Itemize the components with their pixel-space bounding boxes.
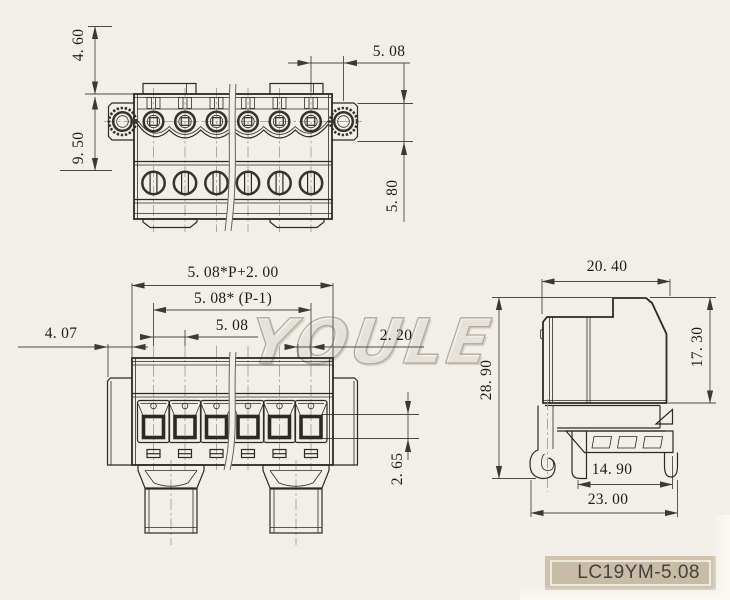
dim-side-depth: 20. 40 <box>587 258 628 276</box>
dim-bottom-pole-span: 5. 08* (P-1) <box>194 290 272 308</box>
side-view <box>492 279 716 517</box>
dim-side-total-height: 28. 90 <box>478 360 496 401</box>
dim-side-total-depth: 23. 00 <box>588 491 629 509</box>
side-dimensions <box>492 279 716 517</box>
dim-bottom-slot-offset: 2. 20 <box>380 327 413 345</box>
dim-front-flange-height: 5. 80 <box>384 180 402 213</box>
bottom-break-line <box>224 352 236 470</box>
bottom-dimensions <box>18 283 424 460</box>
technical-drawing-page: YOULE <box>0 0 730 600</box>
dim-side-rail-width: 14. 90 <box>592 461 633 479</box>
title-box: LC19YM-5.08 <box>545 556 716 590</box>
dim-bottom-opening-height: 2. 65 <box>389 453 407 486</box>
dim-bottom-pitch: 5. 08 <box>216 317 249 335</box>
dim-bottom-edge-margin: 4. 07 <box>45 325 78 343</box>
part-number-label: LC19YM-5.08 <box>550 560 711 586</box>
mounting-pegs <box>138 460 329 545</box>
front-view <box>0 27 413 233</box>
terminal-block-drawing <box>0 0 730 600</box>
dim-front-tab-height: 4. 60 <box>70 29 88 62</box>
dim-bottom-total-width: 5. 08*P+2. 00 <box>187 264 278 282</box>
front-break-line <box>225 84 236 231</box>
dim-side-body-height: 17. 30 <box>689 327 707 368</box>
side-body <box>541 298 667 403</box>
dim-front-body-height: 9. 50 <box>70 132 88 165</box>
page-corner-fade-bottom <box>520 587 730 600</box>
dim-front-screw-pitch: 5. 08 <box>373 43 406 61</box>
mounting-ear-left <box>109 103 137 140</box>
